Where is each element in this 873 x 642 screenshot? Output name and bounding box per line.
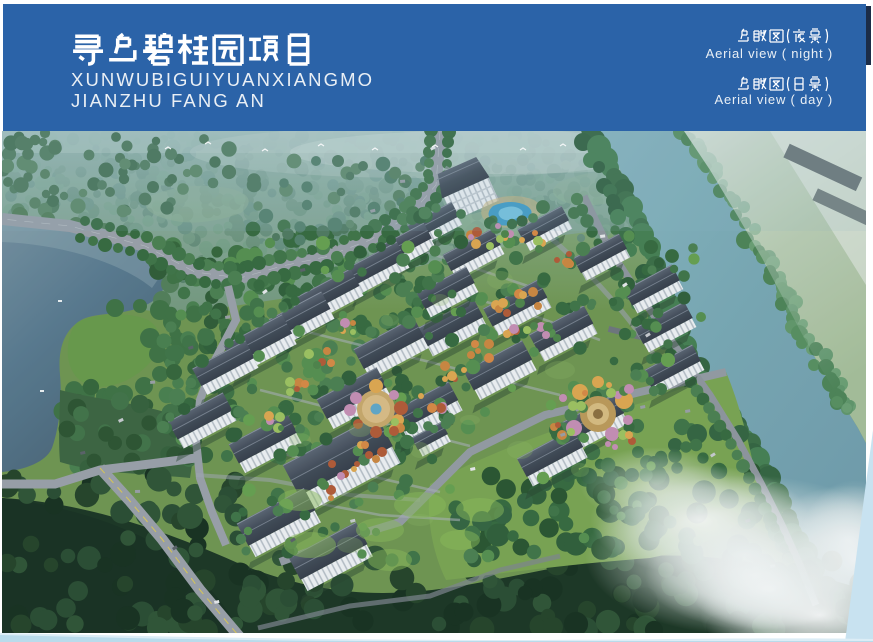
svg-text:Aerial view ( night ): Aerial view ( night ): [706, 46, 833, 61]
svg-text:Aerial view ( day ): Aerial view ( day ): [714, 92, 833, 107]
svg-text:JIANZHU FANG AN: JIANZHU FANG AN: [71, 90, 266, 111]
svg-text:XUNWUBIGUIYUANXIANGMO: XUNWUBIGUIYUANXIANGMO: [71, 69, 374, 90]
